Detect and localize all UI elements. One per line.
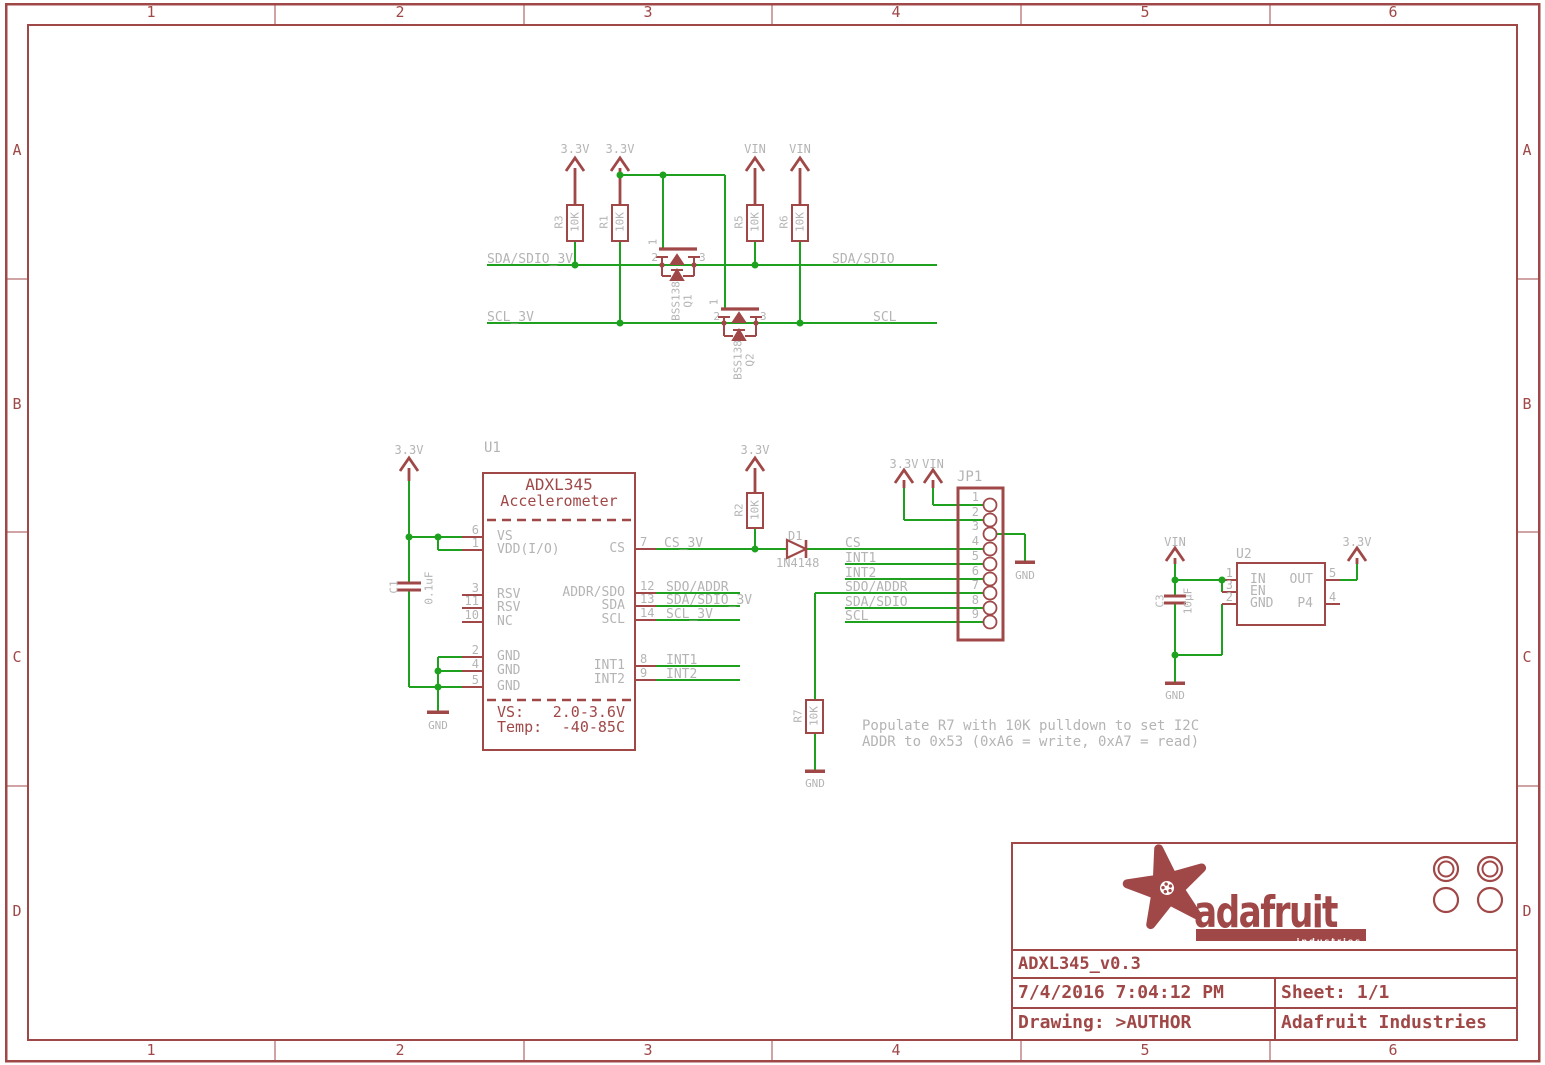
jp1-pin-number: 4: [972, 535, 979, 547]
frame-column-label: 4: [891, 1043, 900, 1058]
u1-pin-number: 8: [640, 653, 647, 665]
resistor-ref: R5: [734, 215, 745, 228]
titleblock-date: 7/4/2016 7:04:12 PM: [1018, 984, 1224, 1002]
power-flag-label: 3.3V: [1343, 536, 1372, 548]
resistor-ref: R3: [554, 215, 565, 228]
capacitor-value: 10µF: [1183, 588, 1194, 615]
frame-row-label: C: [12, 650, 21, 665]
net-label: SDA/SDIO_3V: [487, 253, 573, 266]
connector-ref: JP1: [957, 470, 982, 484]
capacitor-ref: C1: [389, 580, 400, 593]
u2-pin-name: P4: [1297, 597, 1313, 610]
u1-pin-number: 9: [640, 667, 647, 679]
frame-column-label: 6: [1388, 5, 1397, 20]
gnd-label: GND: [1165, 690, 1185, 701]
net-label: CS: [845, 537, 861, 550]
power-flag-label: VIN: [789, 143, 811, 155]
frame-row-label: D: [12, 904, 21, 919]
frame-row-label: C: [1522, 650, 1531, 665]
titleblock-company: Adafruit Industries: [1281, 1014, 1487, 1032]
u1-pin-name: NC: [497, 615, 513, 628]
frame-column-label: 3: [643, 5, 652, 20]
power-flag-label: VIN: [922, 458, 944, 470]
frame-column-label: 5: [1140, 1043, 1149, 1058]
jp1-pin-number: 9: [972, 608, 979, 620]
ic-spec: -40-85C: [562, 720, 625, 735]
net-label: SCL: [873, 311, 896, 324]
titleblock-document-name: ADXL345_v0.3: [1018, 956, 1141, 973]
u1-pin-name: INT1: [594, 659, 625, 672]
net-label: SDA/SDIO_3V: [666, 594, 752, 607]
frame-row-label: D: [1522, 904, 1531, 919]
u1-pin-name: GND: [497, 680, 520, 693]
frame-row-label: A: [1522, 143, 1531, 158]
adafruit-logo-banner-text: industries: [1297, 937, 1366, 946]
net-label: INT1: [845, 552, 876, 565]
u1-pin-number: 11: [465, 595, 479, 607]
mounting-hole-marks: [1434, 857, 1502, 912]
resistor-value: 10K: [809, 706, 820, 726]
u2-pin-number: 2: [1226, 591, 1233, 603]
u1-pin-name: CS: [609, 542, 625, 555]
net-label: SCL_3V: [666, 608, 713, 621]
titleblock-drawing-author: Drawing: >AUTHOR: [1018, 1014, 1191, 1032]
u1-pin-name: INT2: [594, 673, 625, 686]
frame-row-label: B: [12, 397, 21, 412]
u1-pin-number: 12: [640, 580, 654, 592]
net-label: INT2: [666, 668, 697, 681]
frame-column-label: 4: [891, 5, 900, 20]
resistor-ref: R6: [779, 215, 790, 228]
ic-ref: U1: [484, 441, 501, 455]
net-label: SDA/SDIO: [832, 253, 895, 266]
frame-row-label: A: [12, 143, 21, 158]
u1-pin-number: 14: [640, 607, 654, 619]
transistor-value: BSS138: [733, 340, 744, 380]
mosfet-q1-symbol[interactable]: [656, 249, 700, 280]
u2-pin-number: 4: [1329, 591, 1336, 603]
diode-value: 1N4148: [776, 557, 819, 569]
transistor-pin-number: 1: [709, 299, 720, 306]
transistor-ref: Q1: [683, 294, 694, 307]
ic-u1-pin-stubs: [462, 537, 656, 687]
u1-pin-number: 1: [472, 537, 479, 549]
frame-column-label: 3: [643, 1043, 652, 1058]
resistor-value: 10K: [615, 212, 626, 232]
jp1-pin-number: 8: [972, 594, 979, 606]
resistor-ref: R1: [599, 215, 610, 228]
resistor-value: 10K: [795, 212, 806, 232]
u1-pin-name: GND: [497, 664, 520, 677]
power-flag-label: 3.3V: [890, 458, 919, 470]
adafruit-logo-banner: industries: [1196, 929, 1366, 941]
u2-pin-name: GND: [1250, 597, 1273, 610]
resistor-value: 10K: [750, 500, 761, 520]
capacitor-ref: C3: [1155, 594, 1166, 607]
titleblock-sheet: Sheet: 1/1: [1281, 984, 1389, 1002]
jp1-pin-number: 2: [972, 506, 979, 518]
u1-pin-number: 10: [465, 609, 479, 621]
ic-ref: U2: [1236, 548, 1252, 561]
net-label: SDA/SDIO: [845, 596, 908, 609]
note-text: ADDR to 0x53 (0xA6 = write, 0xA7 = read): [862, 735, 1199, 749]
u1-pin-name: SDA: [602, 599, 625, 612]
resistor-value: 10K: [570, 212, 581, 232]
u1-pin-number: 4: [472, 658, 479, 670]
transistor-value: BSS138: [671, 281, 682, 321]
gnd-label: GND: [1015, 570, 1035, 581]
power-flag-label: VIN: [1164, 536, 1186, 548]
frame-column-label: 6: [1388, 1043, 1397, 1058]
jp1-pin-number: 5: [972, 550, 979, 562]
u2-pin-name: OUT: [1290, 573, 1313, 586]
title-block-frame: [1012, 843, 1517, 1040]
gnd-label: GND: [805, 778, 825, 789]
transistor-pin-number: 2: [713, 311, 720, 322]
diode-ref: D1: [788, 530, 802, 542]
u1-pin-number: 13: [640, 593, 654, 605]
power-flag-label: VIN: [744, 143, 766, 155]
transistor-pin-number: 1: [648, 239, 659, 246]
transistor-pin-number: 3: [760, 311, 767, 322]
ic-title: ADXL345: [525, 477, 592, 493]
u1-pin-number: 5: [472, 674, 479, 686]
resistor-ref: R7: [793, 709, 804, 722]
ic-spec: Temp:: [497, 720, 542, 735]
u1-pin-number: 7: [640, 536, 647, 548]
gnd-label: GND: [428, 720, 448, 731]
net-label: SCL: [845, 610, 868, 623]
frame-column-label: 1: [146, 5, 155, 20]
ic-subtitle: Accelerometer: [500, 494, 617, 509]
u1-pin-name: GND: [497, 650, 520, 663]
u1-pin-name: RSV: [497, 601, 520, 614]
u1-pin-name: SCL: [602, 613, 625, 626]
power-flag-label: 3.3V: [741, 444, 770, 456]
note-text: Populate R7 with 10K pulldown to set I2C: [862, 719, 1199, 733]
schematic-sheet: ADXL345_v0.3 7/4/2016 7:04:12 PM Sheet: …: [0, 0, 1545, 1065]
transistor-ref: Q2: [745, 353, 756, 366]
capacitor-value: 0.1uF: [424, 571, 435, 604]
frame-column-label: 2: [395, 1043, 404, 1058]
frame-column-label: 5: [1140, 5, 1149, 20]
mosfet-q2-symbol[interactable]: [718, 309, 762, 340]
u1-pin-number: 2: [472, 644, 479, 656]
u1-pin-number: 3: [472, 582, 479, 594]
net-label: SDO/ADDR: [845, 581, 908, 594]
net-label: CS_3V: [664, 537, 703, 550]
u1-pin-name: VDD(I/O): [497, 543, 560, 556]
net-label: INT2: [845, 567, 876, 580]
transistor-pin-number: 3: [699, 252, 706, 263]
transistor-pin-number: 2: [651, 252, 658, 263]
resistor-ref: R2: [734, 503, 745, 516]
resistor-value: 10K: [750, 212, 761, 232]
frame-row-label: B: [1522, 397, 1531, 412]
net-label: SCL_3V: [487, 311, 534, 324]
ic-u2-outline[interactable]: [1222, 563, 1340, 625]
u2-pin-number: 5: [1329, 567, 1336, 579]
frame-column-label: 2: [395, 5, 404, 20]
power-flag-label: 3.3V: [606, 143, 635, 155]
u1-pin-number: 6: [472, 524, 479, 536]
power-flag-label: 3.3V: [561, 143, 590, 155]
power-flag-label: 3.3V: [395, 444, 424, 456]
jp1-pin-number: 3: [972, 520, 979, 532]
jp1-pin-number: 6: [972, 565, 979, 577]
net-label: INT1: [666, 654, 697, 667]
frame-column-label: 1: [146, 1043, 155, 1058]
jp1-pin-number: 7: [972, 579, 979, 591]
jp1-pin-number: 1: [972, 491, 979, 503]
